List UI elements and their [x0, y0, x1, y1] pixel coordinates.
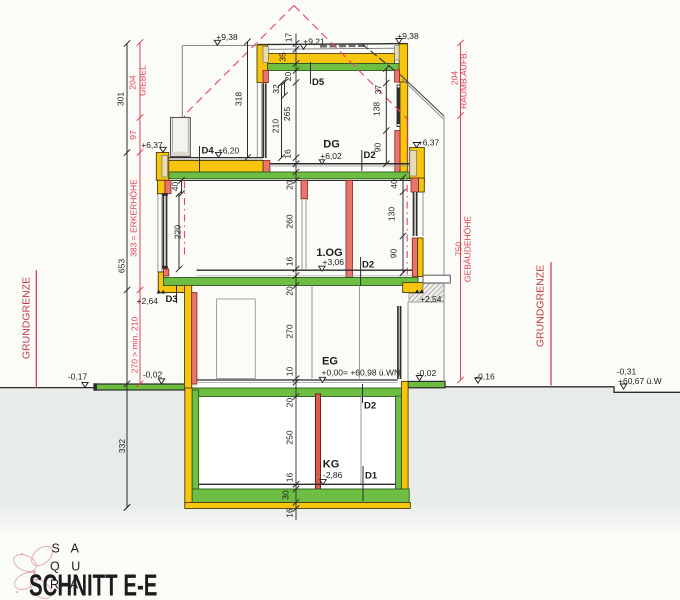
svg-text:-0,31: -0,31	[617, 367, 637, 377]
svg-text:D3: D3	[166, 294, 178, 305]
svg-text:+6,37: +6,37	[418, 138, 440, 148]
svg-text:20: 20	[285, 398, 295, 408]
svg-text:16: 16	[285, 473, 295, 483]
svg-text:10: 10	[285, 367, 295, 377]
svg-text:17: 17	[284, 33, 294, 43]
svg-text:260: 260	[285, 214, 295, 228]
svg-text:138: 138	[372, 102, 382, 116]
svg-text:90: 90	[389, 249, 399, 259]
svg-text:GIEBEL: GIEBEL	[138, 65, 148, 96]
svg-text:D2: D2	[364, 401, 376, 412]
svg-text:GRUNDGRENZE: GRUNDGRENZE	[21, 277, 33, 359]
svg-text:37: 37	[373, 85, 383, 95]
svg-text:1.OG: 1.OG	[316, 247, 342, 259]
svg-text:40: 40	[389, 179, 399, 189]
svg-text:DG: DG	[323, 139, 340, 151]
svg-text:D2: D2	[362, 260, 374, 271]
svg-text:20: 20	[283, 72, 293, 82]
svg-text:90: 90	[373, 143, 383, 153]
svg-text:+2,64: +2,64	[136, 296, 158, 306]
svg-text:D1: D1	[365, 471, 378, 482]
svg-text:220: 220	[173, 225, 183, 239]
svg-text:250: 250	[285, 430, 295, 444]
svg-text:653: 653	[117, 259, 127, 273]
svg-text:GRUNDGRENZE: GRUNDGRENZE	[535, 265, 547, 347]
svg-text:+0,00= +60,98 ü.WN: +0,00= +60,98 ü.WN	[322, 368, 401, 378]
svg-text:16: 16	[283, 149, 293, 159]
svg-text:16: 16	[285, 257, 295, 267]
svg-text:D4: D4	[202, 146, 215, 157]
svg-text:40: 40	[170, 182, 180, 192]
svg-text:-2,86: -2,86	[323, 470, 343, 480]
svg-text:270 > min. 210: 270 > min. 210	[130, 316, 140, 373]
svg-text:332: 332	[117, 439, 127, 453]
svg-text:S A: S A	[52, 542, 83, 556]
svg-text:-0,02: -0,02	[143, 370, 163, 380]
svg-text:+6,37: +6,37	[141, 140, 163, 150]
svg-text:KG: KG	[323, 459, 340, 471]
svg-text:20: 20	[285, 286, 295, 296]
svg-text:383 = ERKERHÖHE: 383 = ERKERHÖHE	[129, 179, 139, 257]
svg-text:204: 204	[128, 75, 138, 89]
svg-text:270: 270	[285, 324, 295, 338]
svg-text:97: 97	[128, 130, 138, 140]
svg-text:D5: D5	[312, 77, 325, 88]
svg-text:20: 20	[285, 180, 295, 190]
svg-text:16: 16	[285, 508, 295, 518]
svg-text:210: 210	[271, 119, 281, 133]
svg-text:35: 35	[278, 52, 288, 62]
svg-text:265: 265	[282, 107, 292, 121]
svg-text:32: 32	[271, 84, 281, 94]
svg-text:GEBÄUDEHÖHE: GEBÄUDEHÖHE	[463, 216, 473, 282]
svg-text:-0,17: -0,17	[68, 372, 88, 382]
svg-text:EG: EG	[322, 356, 338, 368]
svg-text:+2,54: +2,54	[420, 294, 442, 304]
svg-text:130: 130	[387, 207, 397, 221]
svg-text:318: 318	[234, 92, 244, 106]
svg-text:SCHNITT E-E: SCHNITT E-E	[29, 567, 157, 600]
svg-text:RAUMB.AUFB.: RAUMB.AUFB.	[459, 51, 469, 109]
svg-text:301: 301	[116, 92, 126, 106]
svg-text:30: 30	[281, 490, 291, 500]
